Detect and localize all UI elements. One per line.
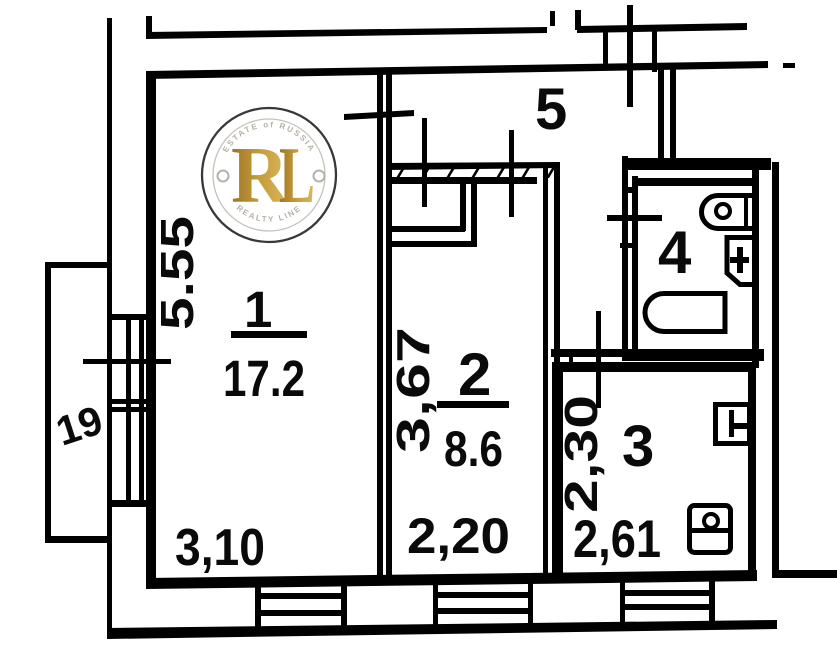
svg-text:L: L (279, 132, 315, 220)
svg-text:3,10: 3,10 (175, 519, 265, 577)
svg-text:4: 4 (658, 219, 692, 286)
svg-text:8.6: 8.6 (444, 421, 503, 477)
svg-text:5: 5 (535, 77, 567, 142)
svg-text:1: 1 (244, 281, 272, 338)
svg-text:2,20: 2,20 (407, 508, 510, 564)
svg-text:3: 3 (622, 414, 654, 479)
svg-text:2: 2 (458, 341, 491, 408)
svg-text:2,61: 2,61 (573, 510, 661, 569)
svg-text:3,67: 3,67 (387, 327, 439, 453)
svg-text:2,30: 2,30 (555, 395, 607, 513)
svg-text:17.2: 17.2 (223, 350, 305, 407)
svg-text:5.55: 5.55 (151, 216, 203, 330)
